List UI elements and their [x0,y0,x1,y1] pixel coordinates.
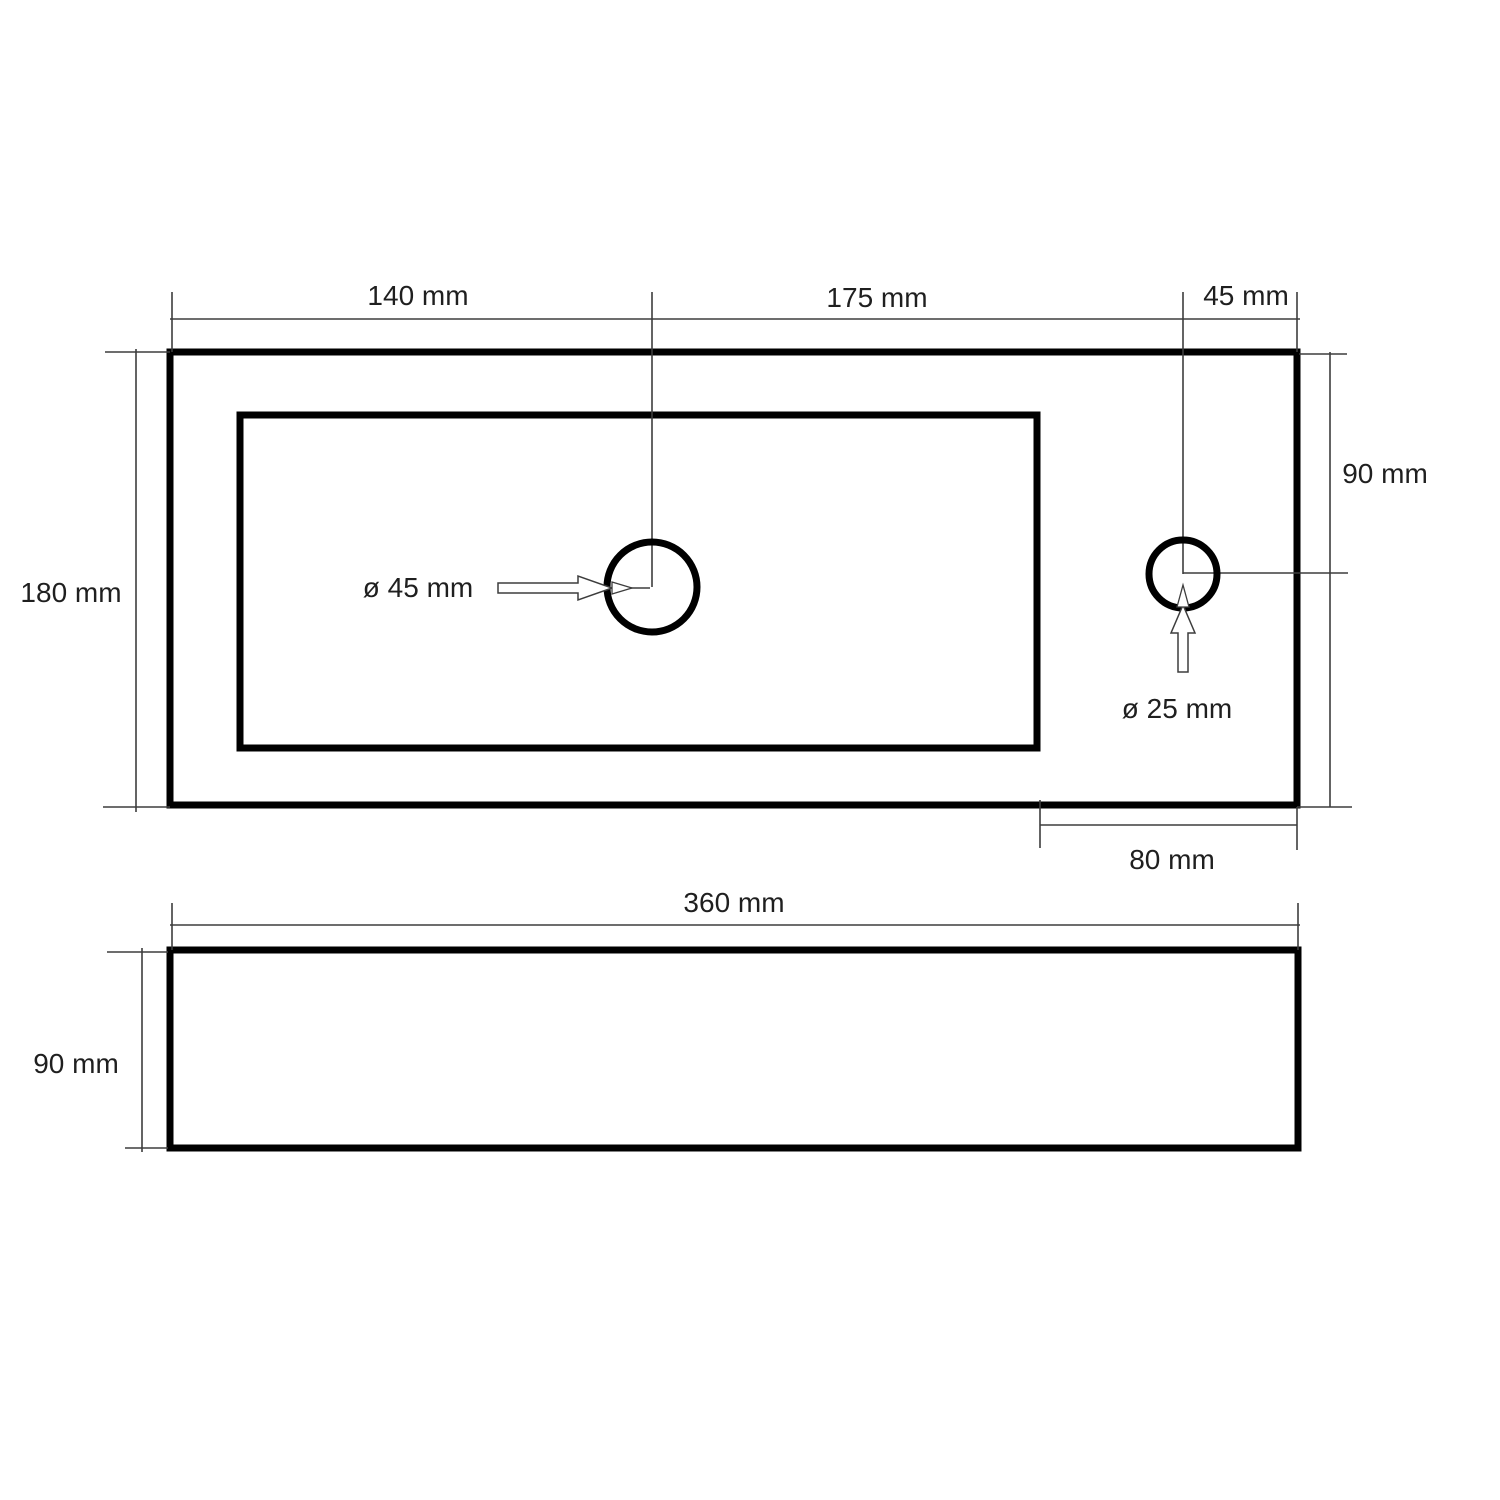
technical-drawing-page: 140 mm 175 mm 45 mm 180 mm 90 mm 80 mm ø… [0,0,1500,1500]
dim-label-drain-diameter: ø 45 mm [363,572,473,603]
tap-small-dart [1177,585,1189,607]
side-view: 360 mm 90 mm [33,887,1300,1152]
top-view-outer-rect [170,352,1297,805]
dim-label-140mm: 140 mm [367,280,468,311]
drain-small-dart [612,582,632,594]
dim-label-80mm: 80 mm [1129,844,1215,875]
dim-label-tap-diameter: ø 25 mm [1122,693,1232,724]
top-view-basin-rect [240,415,1037,748]
dim-label-360mm: 360 mm [683,887,784,918]
top-view: 140 mm 175 mm 45 mm 180 mm 90 mm 80 mm ø… [20,280,1427,875]
dim-label-175mm: 175 mm [826,282,927,313]
tap-open-arrow [1171,605,1195,672]
sink-dimension-drawing: 140 mm 175 mm 45 mm 180 mm 90 mm 80 mm ø… [0,0,1500,1500]
dim-label-180mm: 180 mm [20,577,121,608]
dim-label-45mm: 45 mm [1203,280,1289,311]
drain-open-arrow [498,576,612,600]
dim-label-90mm-right: 90 mm [1342,458,1428,489]
tap-leader-arrow [1171,585,1195,672]
drain-leader-arrow [498,576,650,600]
side-view-rect [170,950,1298,1148]
dim-label-90mm-side: 90 mm [33,1048,119,1079]
